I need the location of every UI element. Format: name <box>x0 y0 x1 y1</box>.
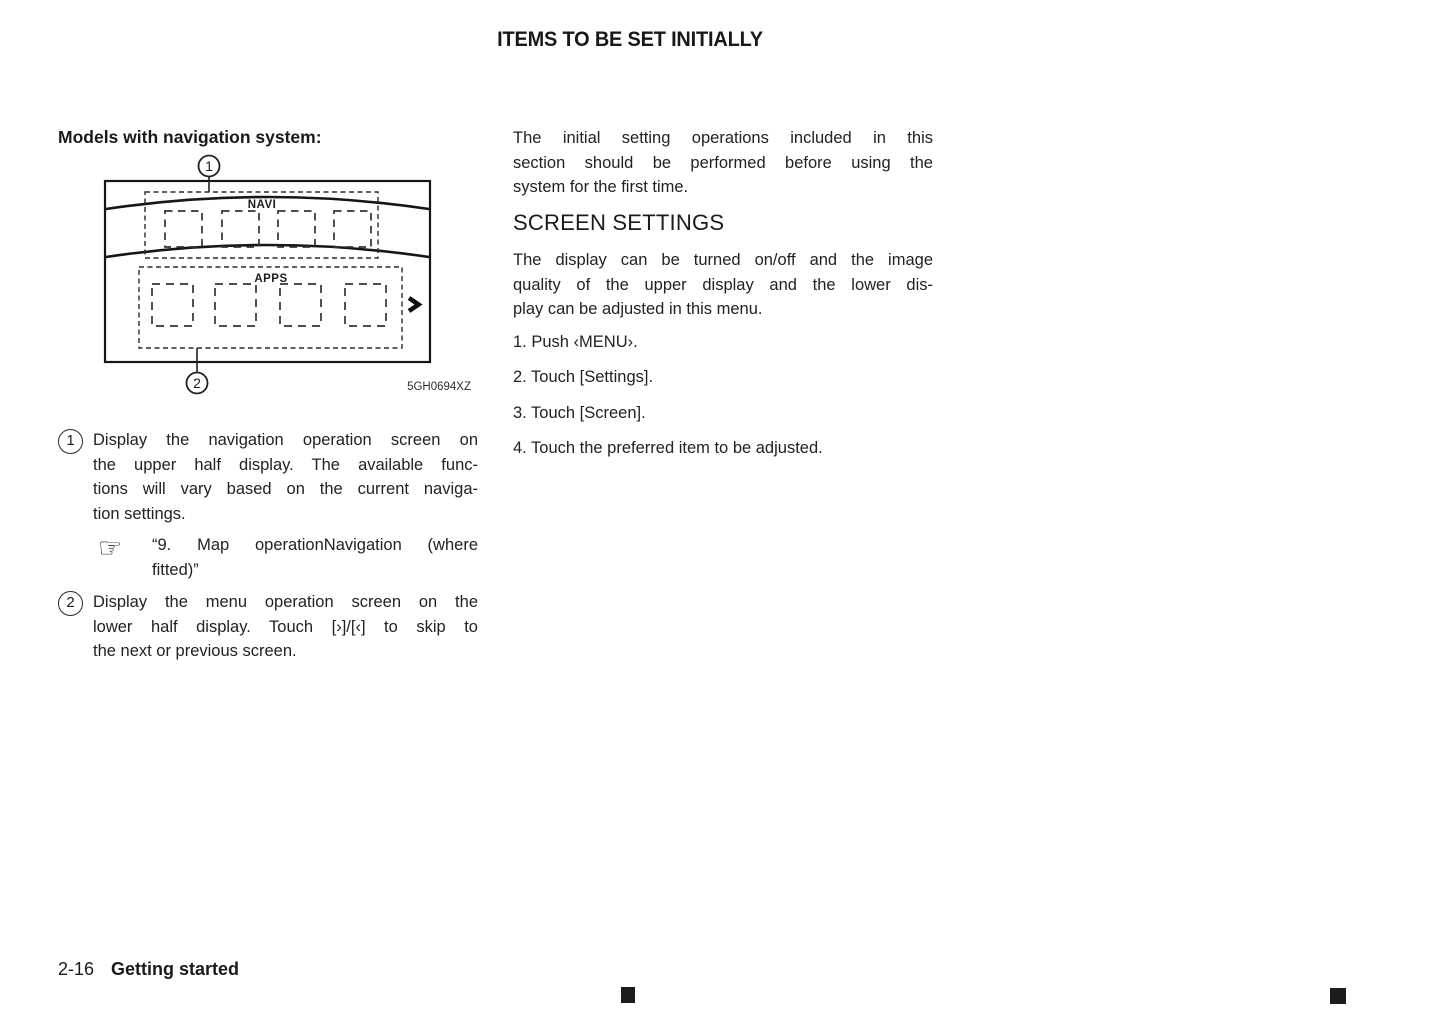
description-paragraph: The display can be turned on/off and the… <box>513 248 933 322</box>
print-registration-mark <box>621 987 635 1003</box>
pointing-hand-icon: ☞ <box>98 535 122 562</box>
cross-reference: ☞ “9. Map operationNavigation (wherefitt… <box>58 533 478 582</box>
intro-paragraph: The initial setting operations included … <box>513 126 933 200</box>
reference-text: “9. Map operationNavigation (wherefitted… <box>152 533 478 582</box>
navi-region-label: NAVI <box>248 199 277 211</box>
step-4: 4. Touch the preferred item to be adjust… <box>513 436 933 461</box>
section-heading: SCREEN SETTINGS <box>513 210 724 236</box>
print-registration-mark <box>1330 988 1346 1004</box>
step-3: 3. Touch [Screen]. <box>513 401 933 426</box>
manual-page: ITEMS TO BE SET INITIALLY Models with na… <box>0 0 1445 1019</box>
page-footer: 2-16Getting started <box>58 959 239 980</box>
callout-1-number: 1 <box>205 158 213 174</box>
step-2: 2. Touch [Settings]. <box>513 365 933 390</box>
footer-section-title: Getting started <box>111 959 239 979</box>
step-1: 1. Push ‹MENU›. <box>513 330 933 355</box>
steps-list: 1. Push ‹MENU›. 2. Touch [Settings]. 3. … <box>513 330 933 472</box>
callout-2-number: 2 <box>193 375 201 391</box>
item-2-number-badge: 2 <box>58 591 83 616</box>
list-item: 2 Display the menu operation screen on t… <box>58 590 478 664</box>
page-title: ITEMS TO BE SET INITIALLY <box>440 28 820 52</box>
figure-code: 5GH0694XZ <box>407 381 471 393</box>
item-2-text: Display the menu operation screen on the… <box>93 590 478 664</box>
page-number: 2-16 <box>58 959 94 979</box>
item-1-number-badge: 1 <box>58 429 83 454</box>
item-1-text: Display the navigation operation screen … <box>93 428 478 526</box>
list-item: 1 Display the navigation operation scree… <box>58 428 478 526</box>
models-heading: Models with navigation system: <box>58 127 322 148</box>
display-unit-figure: NAVI APPS 1 2 5GH0694XZ <box>95 152 475 402</box>
